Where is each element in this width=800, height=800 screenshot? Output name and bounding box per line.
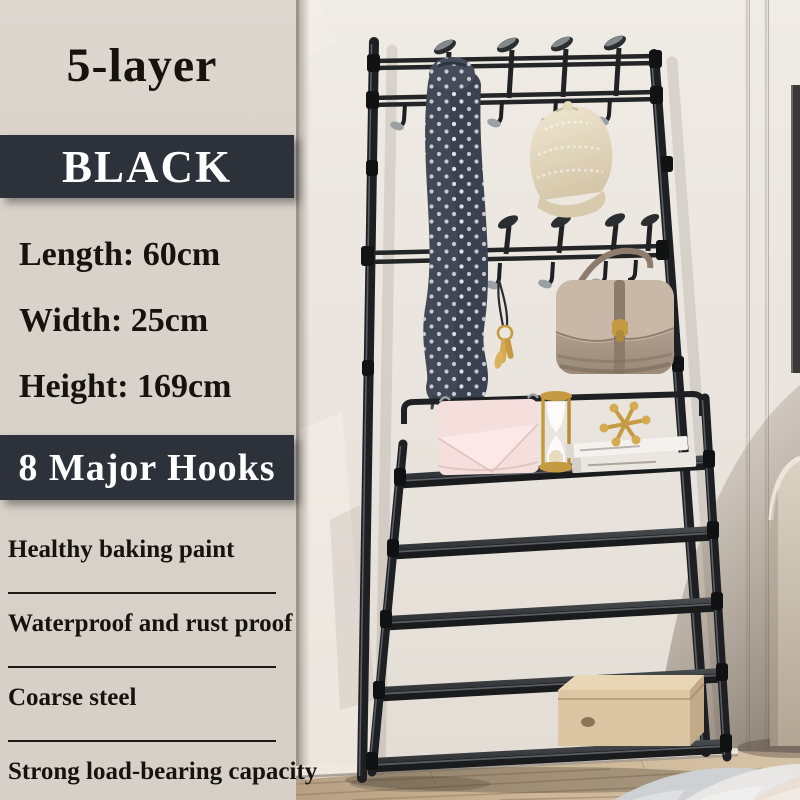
dimensions: Length: 60cm Width: 25cm Height: 169cm	[19, 222, 231, 420]
feature-item: Healthy baking paint	[8, 520, 276, 594]
hourglass	[539, 391, 573, 473]
feature-list: Healthy baking paint Waterproof and rust…	[8, 520, 276, 800]
layer-title: 5-layer	[0, 38, 284, 93]
picture-frame-edge	[791, 85, 800, 373]
shoe-box	[558, 675, 704, 746]
dimension-width: Width: 25cm	[19, 288, 231, 354]
feature-item: Coarse steel	[8, 668, 276, 742]
dimension-length: Length: 60cm	[19, 222, 231, 288]
feature-item: Waterproof and rust proof	[8, 594, 276, 668]
polka-dot-scarf	[429, 57, 475, 412]
product-image: 5-layer BLACK Length: 60cm Width: 25cm H…	[0, 0, 800, 800]
color-banner: BLACK	[0, 135, 294, 198]
feature-item: Strong load-bearing capacity	[8, 742, 276, 800]
info-panel: 5-layer BLACK Length: 60cm Width: 25cm H…	[0, 0, 296, 800]
dimension-height: Height: 169cm	[19, 354, 231, 420]
hooks-banner: 8 Major Hooks	[0, 435, 294, 500]
pink-clutch	[437, 395, 539, 476]
